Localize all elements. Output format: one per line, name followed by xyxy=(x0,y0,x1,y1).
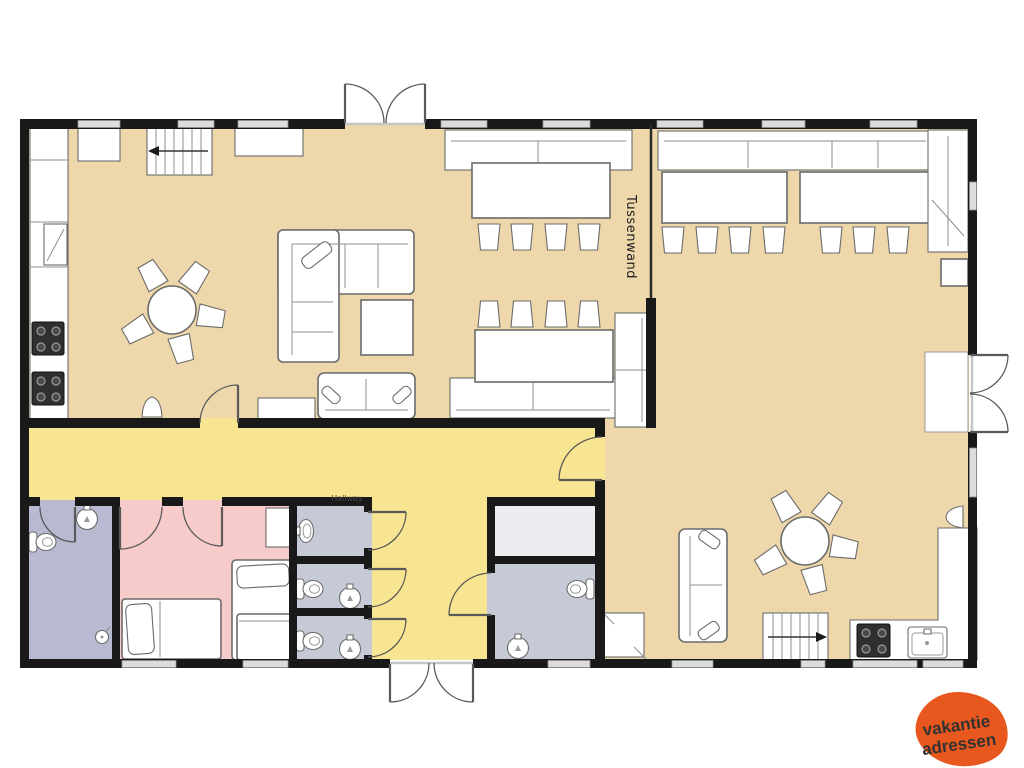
window xyxy=(548,661,590,668)
toilet-icon xyxy=(29,532,56,552)
floor-plan-svg: Hallway Tussenwand vakantie adressen xyxy=(0,0,1024,768)
window xyxy=(178,121,214,128)
window xyxy=(970,182,977,210)
dining-table xyxy=(800,172,938,223)
window xyxy=(441,121,487,128)
window xyxy=(853,661,917,668)
sideboard xyxy=(235,128,303,156)
two-seat-sofa xyxy=(679,529,727,642)
chair xyxy=(887,227,909,253)
pillow xyxy=(236,564,289,589)
kitchen-sink xyxy=(908,627,947,658)
toilet-icon xyxy=(296,579,323,599)
chair xyxy=(763,227,785,253)
cabinet xyxy=(78,128,120,161)
coffee-table xyxy=(361,300,413,355)
round-dining-table xyxy=(781,517,829,565)
window xyxy=(870,121,917,128)
staircase-right xyxy=(763,613,828,660)
chair xyxy=(478,301,500,327)
wall-bench xyxy=(658,131,932,170)
hallway-label: Hallway xyxy=(331,494,363,503)
window xyxy=(672,661,713,668)
single-bed xyxy=(122,599,221,659)
chair xyxy=(511,301,533,327)
chair xyxy=(578,224,600,250)
chair xyxy=(478,224,500,250)
floor-plan-page: Hallway Tussenwand vakantie adressen xyxy=(0,0,1024,768)
window xyxy=(238,121,288,128)
bunk-bed xyxy=(232,560,294,660)
chair xyxy=(545,224,567,250)
chair xyxy=(853,227,875,253)
room-storage xyxy=(487,500,600,562)
chair xyxy=(820,227,842,253)
round-dining-table xyxy=(148,286,196,334)
window xyxy=(543,121,590,128)
window xyxy=(970,448,977,497)
toilet-icon xyxy=(567,579,594,599)
pillow xyxy=(125,603,154,655)
window xyxy=(78,121,120,128)
room-bathroom-middle xyxy=(487,562,600,660)
chair xyxy=(511,224,533,250)
chair xyxy=(578,301,600,327)
doormat xyxy=(925,352,968,432)
window xyxy=(243,661,288,668)
side-table xyxy=(258,398,315,419)
stool xyxy=(941,259,968,286)
tussenwand-label: Tussenwand xyxy=(623,194,638,279)
window xyxy=(923,661,963,668)
chair xyxy=(662,227,684,253)
window xyxy=(801,661,825,668)
dining-table xyxy=(475,330,613,382)
chair xyxy=(729,227,751,253)
dining-table xyxy=(662,172,787,223)
staircase-left xyxy=(147,127,212,175)
dining-table xyxy=(472,163,610,218)
window xyxy=(122,661,176,668)
two-seat-sofa xyxy=(318,373,415,419)
chair xyxy=(545,301,567,327)
window xyxy=(657,121,703,128)
toilet-icon xyxy=(296,631,323,651)
window xyxy=(762,121,805,128)
chair xyxy=(696,227,718,253)
